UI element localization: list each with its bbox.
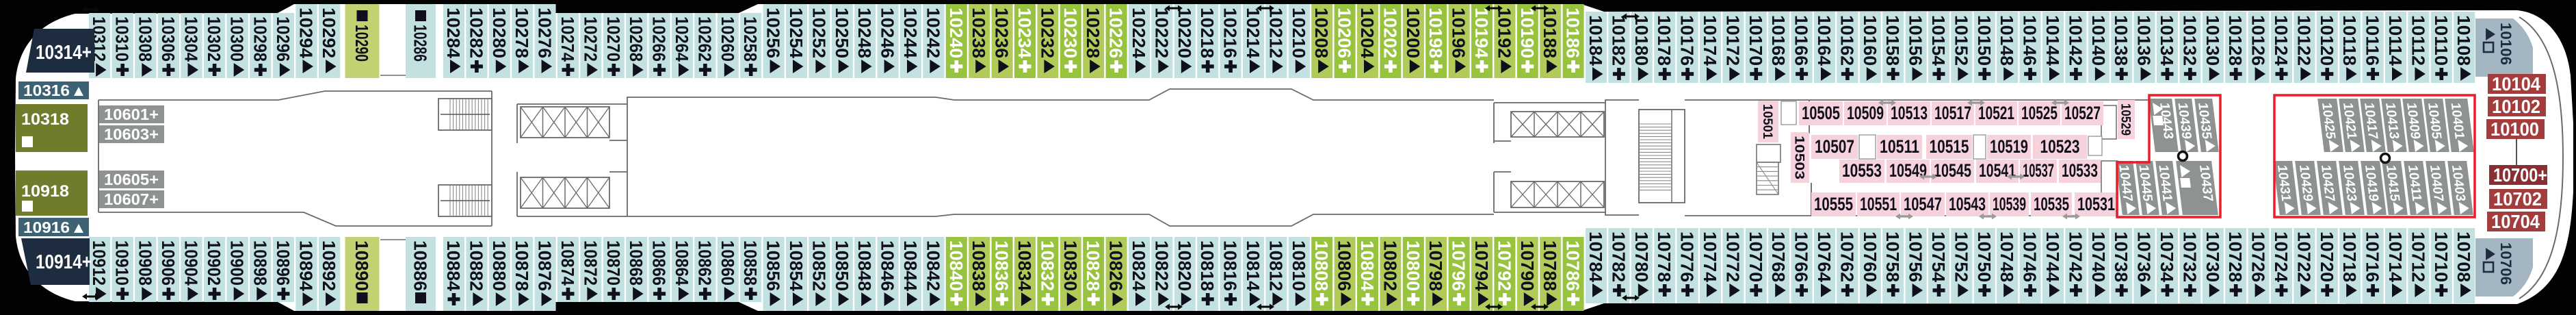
svg-text:10118: 10118 [2339,15,2360,66]
svg-text:10804: 10804 [1357,240,1378,292]
svg-text:10274: 10274 [557,16,578,62]
svg-text:10780: 10780 [1631,231,1652,282]
svg-text:10850: 10850 [832,240,852,291]
svg-text:10304: 10304 [181,16,202,62]
svg-text:10916: 10916 [23,218,70,236]
svg-text:10515: 10515 [1930,136,1969,157]
svg-text:10786: 10786 [1563,240,1583,291]
svg-text:10535: 10535 [2034,194,2069,214]
svg-text:10116: 10116 [2363,15,2383,66]
svg-text:10523: 10523 [2040,136,2080,157]
svg-text:10302: 10302 [204,16,224,62]
svg-text:10262: 10262 [694,16,715,62]
svg-text:10904: 10904 [181,240,202,286]
svg-text:10545: 10545 [1934,160,1971,181]
svg-text:10601+: 10601+ [104,105,159,123]
svg-text:10244: 10244 [900,8,921,59]
svg-text:10820: 10820 [1174,240,1195,291]
svg-text:10501: 10501 [1760,104,1774,139]
svg-text:10280: 10280 [489,8,510,58]
svg-text:10308: 10308 [135,16,155,62]
svg-text:10509: 10509 [1847,103,1884,123]
svg-text:10268: 10268 [626,16,646,62]
svg-text:10146: 10146 [2020,15,2040,66]
svg-text:10248: 10248 [854,8,875,58]
svg-text:10784: 10784 [1586,231,1606,283]
svg-text:10788: 10788 [1540,240,1560,291]
svg-text:10776: 10776 [1677,231,1698,282]
svg-text:10710: 10710 [2431,231,2452,282]
svg-text:10766: 10766 [1791,231,1812,282]
svg-text:10607+: 10607+ [104,190,159,208]
svg-text:10206: 10206 [1335,8,1355,58]
svg-text:10706: 10706 [2497,242,2514,285]
svg-text:10704: 10704 [2491,211,2540,232]
svg-text:10166: 10166 [1791,15,1812,66]
svg-text:10840: 10840 [946,240,967,291]
svg-text:10218: 10218 [1197,8,1218,58]
svg-text:10774: 10774 [1700,231,1720,283]
svg-text:10826: 10826 [1106,240,1127,291]
svg-text:10533: 10533 [2062,160,2098,181]
svg-text:10112: 10112 [2408,15,2428,66]
svg-text:10547: 10547 [1904,194,1942,214]
svg-text:10519: 10519 [1990,136,2028,157]
svg-text:10810: 10810 [1289,240,1309,291]
svg-text:10718: 10718 [2339,231,2360,282]
svg-text:10752: 10752 [1951,231,1971,282]
svg-text:10712: 10712 [2408,231,2428,282]
svg-text:10188: 10188 [1540,8,1560,58]
svg-text:10180: 10180 [1631,15,1652,66]
svg-text:10216: 10216 [1220,8,1241,58]
svg-text:10184: 10184 [1586,15,1606,66]
svg-text:10256: 10256 [763,8,784,58]
svg-text:10270: 10270 [603,16,624,62]
svg-text:10770: 10770 [1746,231,1766,282]
svg-text:10868: 10868 [626,240,646,286]
svg-text:10836: 10836 [992,240,1012,291]
svg-text:10164: 10164 [1814,15,1835,66]
svg-text:10838: 10838 [969,240,989,291]
svg-text:10870: 10870 [603,240,624,286]
svg-text:10513: 10513 [1891,103,1928,123]
svg-text:10521: 10521 [1978,103,2014,123]
svg-text:10194: 10194 [1471,8,1492,59]
svg-text:10276: 10276 [535,8,555,58]
svg-text:10722: 10722 [2294,231,2314,282]
svg-text:10224: 10224 [1129,8,1149,59]
svg-text:10796: 10796 [1449,240,1469,291]
svg-text:10176: 10176 [1677,15,1698,66]
svg-text:10152: 10152 [1951,15,1971,66]
svg-text:10740: 10740 [2088,231,2109,282]
svg-text:10234: 10234 [1014,8,1035,59]
svg-text:10511: 10511 [1880,136,1919,157]
svg-text:10874: 10874 [557,240,578,286]
svg-text:10714: 10714 [2385,231,2406,283]
svg-text:10816: 10816 [1220,240,1241,291]
svg-text:10882: 10882 [466,240,486,291]
svg-text:10106: 10106 [2497,23,2514,65]
svg-text:10170: 10170 [1746,15,1766,66]
svg-text:10605+: 10605+ [104,171,159,188]
svg-text:10794: 10794 [1471,240,1492,292]
svg-text:10110: 10110 [2431,15,2452,66]
svg-text:10132: 10132 [2179,15,2200,66]
svg-text:10318: 10318 [21,110,69,129]
svg-text:10708: 10708 [2454,231,2474,282]
svg-text:10764: 10764 [1814,231,1835,283]
svg-text:10140: 10140 [2088,15,2109,66]
svg-text:10154: 10154 [1928,15,1949,66]
svg-text:10862: 10862 [694,240,715,286]
svg-text:10507: 10507 [1815,136,1854,157]
svg-text:10910: 10910 [112,240,133,286]
svg-text:10744: 10744 [2042,231,2063,283]
svg-text:10202: 10202 [1380,8,1400,58]
svg-text:10732: 10732 [2179,231,2200,282]
svg-text:10126: 10126 [2248,15,2269,66]
svg-text:10702: 10702 [2493,188,2542,210]
svg-text:10182: 10182 [1608,15,1629,66]
svg-text:10156: 10156 [1906,15,1926,66]
svg-text:10214: 10214 [1243,8,1263,59]
svg-text:10525: 10525 [2021,103,2058,123]
svg-text:10734: 10734 [2157,231,2177,283]
svg-text:10242: 10242 [923,8,943,58]
svg-text:10822: 10822 [1151,240,1172,291]
svg-text:10912: 10912 [89,240,109,286]
svg-text:10266: 10266 [649,16,670,62]
svg-text:10898: 10898 [250,240,270,286]
svg-text:10818: 10818 [1197,240,1218,291]
svg-text:10220: 10220 [1174,8,1195,58]
svg-text:10886: 10886 [410,240,431,291]
svg-text:10832: 10832 [1037,240,1057,291]
svg-text:10298: 10298 [250,16,270,62]
svg-text:10264: 10264 [672,16,692,62]
svg-text:10254: 10254 [786,8,806,59]
svg-text:10192: 10192 [1494,8,1514,58]
svg-text:10906: 10906 [158,240,179,286]
svg-text:10212: 10212 [1265,8,1286,58]
svg-text:10716: 10716 [2363,231,2383,282]
svg-text:10130: 10130 [2203,15,2223,66]
svg-text:10240: 10240 [946,8,967,58]
svg-text:10150: 10150 [1974,15,1995,66]
svg-text:10834: 10834 [1014,240,1035,292]
svg-text:10543: 10543 [1949,194,1986,214]
svg-text:10539: 10539 [1993,194,2026,214]
svg-text:10236: 10236 [992,8,1012,58]
svg-text:10134: 10134 [2157,15,2177,66]
svg-text:10284: 10284 [443,8,464,59]
svg-text:10800: 10800 [1403,240,1423,291]
svg-text:10918: 10918 [21,182,69,201]
svg-text:10772: 10772 [1722,231,1743,282]
svg-text:10603+: 10603+ [104,125,159,143]
svg-text:10914+: 10914+ [36,251,92,273]
svg-text:10316: 10316 [23,81,70,99]
svg-text:10880: 10880 [489,240,510,291]
svg-text:10286: 10286 [410,25,431,62]
svg-text:10756: 10756 [1906,231,1926,282]
svg-text:10168: 10168 [1768,15,1789,66]
svg-text:10178: 10178 [1654,15,1674,66]
svg-text:10238: 10238 [969,8,989,58]
svg-text:10208: 10208 [1311,8,1332,58]
svg-text:10760: 10760 [1860,231,1880,282]
svg-text:10762: 10762 [1837,231,1857,282]
svg-text:10200: 10200 [1403,8,1423,58]
svg-text:10148: 10148 [1997,15,2017,66]
svg-text:10748: 10748 [1997,231,2017,282]
svg-text:10700+: 10700+ [2493,164,2547,186]
svg-text:10894: 10894 [296,240,317,292]
svg-text:10144: 10144 [2042,15,2063,66]
svg-text:10186: 10186 [1563,8,1583,58]
svg-text:10890: 10890 [352,240,372,291]
svg-text:10172: 10172 [1722,15,1743,66]
svg-text:10728: 10728 [2225,231,2246,282]
svg-text:10856: 10856 [763,240,784,291]
svg-text:10790: 10790 [1517,240,1538,291]
svg-text:10272: 10272 [580,16,601,62]
svg-text:10782: 10782 [1608,231,1629,282]
svg-text:10204: 10204 [1357,8,1378,59]
svg-text:10798: 10798 [1425,240,1446,291]
svg-text:10854: 10854 [786,240,806,292]
svg-text:10114: 10114 [2385,15,2406,66]
svg-text:10174: 10174 [1700,15,1720,66]
svg-text:10258: 10258 [740,16,761,62]
svg-text:10306: 10306 [158,16,179,62]
svg-text:10260: 10260 [718,16,738,62]
svg-text:10228: 10228 [1083,8,1103,58]
svg-text:10531: 10531 [2077,194,2115,214]
svg-text:10852: 10852 [809,240,829,291]
svg-text:10828: 10828 [1083,240,1103,291]
svg-text:10806: 10806 [1335,240,1355,291]
svg-text:10754: 10754 [1928,231,1949,283]
svg-text:10517: 10517 [1934,103,1971,123]
svg-text:10136: 10136 [2134,15,2155,66]
svg-text:10310: 10310 [112,16,133,62]
svg-text:10294: 10294 [296,8,317,59]
svg-text:10300: 10300 [227,16,248,62]
svg-text:10210: 10210 [1289,8,1309,58]
svg-text:10808: 10808 [1311,240,1332,291]
svg-text:10878: 10878 [512,240,532,291]
svg-text:10812: 10812 [1265,240,1286,291]
svg-text:10232: 10232 [1037,8,1057,58]
svg-text:10742: 10742 [2065,231,2086,282]
svg-text:10503: 10503 [1792,136,1806,179]
svg-text:10814: 10814 [1243,240,1263,292]
svg-text:10108: 10108 [2454,15,2474,66]
svg-text:10124: 10124 [2271,15,2291,66]
svg-text:10720: 10720 [2317,231,2337,282]
svg-text:10730: 10730 [2203,231,2223,282]
svg-text:10120: 10120 [2317,15,2337,66]
svg-text:10122: 10122 [2294,15,2314,66]
svg-text:10198: 10198 [1425,8,1446,58]
svg-text:10908: 10908 [135,240,155,286]
svg-text:10296: 10296 [273,16,293,62]
svg-text:10746: 10746 [2020,231,2040,282]
svg-text:10866: 10866 [649,240,670,286]
svg-text:10736: 10736 [2134,231,2155,282]
svg-text:10842: 10842 [923,240,943,291]
svg-text:10278: 10278 [512,8,532,58]
svg-text:10162: 10162 [1837,15,1857,66]
svg-text:10824: 10824 [1129,240,1149,292]
svg-text:10100: 10100 [2490,118,2539,140]
svg-text:10844: 10844 [900,240,921,292]
svg-text:10872: 10872 [580,240,601,286]
svg-text:10250: 10250 [832,8,852,58]
svg-text:10252: 10252 [809,8,829,58]
svg-text:10222: 10222 [1151,8,1172,58]
svg-text:10778: 10778 [1654,231,1674,282]
svg-text:10726: 10726 [2248,231,2269,282]
svg-text:10104: 10104 [2492,73,2540,94]
svg-text:10282: 10282 [466,8,486,58]
svg-text:10892: 10892 [319,240,339,291]
svg-text:10876: 10876 [535,240,555,291]
svg-text:10138: 10138 [2111,15,2131,66]
svg-text:10128: 10128 [2225,15,2246,66]
svg-text:10527: 10527 [2064,103,2101,123]
svg-text:10830: 10830 [1060,240,1081,291]
svg-text:10553: 10553 [1842,160,1882,181]
svg-text:10246: 10246 [878,8,898,58]
svg-text:10290: 10290 [352,25,372,62]
svg-text:10142: 10142 [2065,15,2086,66]
svg-text:10551: 10551 [1860,194,1897,214]
svg-text:10802: 10802 [1380,240,1400,291]
svg-text:10158: 10158 [1882,15,1903,66]
svg-text:10738: 10738 [2111,231,2131,282]
svg-text:10190: 10190 [1517,8,1538,58]
svg-text:10314+: 10314+ [36,42,92,64]
svg-text:10226: 10226 [1106,8,1127,58]
svg-text:10102: 10102 [2492,96,2540,117]
svg-text:10505: 10505 [1802,103,1840,123]
svg-text:10848: 10848 [854,240,875,291]
svg-text:10902: 10902 [204,240,224,286]
svg-text:10529: 10529 [2118,103,2133,136]
svg-text:10884: 10884 [443,240,464,292]
svg-text:10292: 10292 [319,8,339,58]
svg-text:10196: 10196 [1449,8,1469,58]
svg-text:10846: 10846 [878,240,898,291]
svg-text:10860: 10860 [718,240,738,286]
svg-text:10537: 10537 [2023,160,2054,181]
svg-text:10555: 10555 [1814,194,1853,214]
svg-text:10792: 10792 [1494,240,1514,291]
svg-text:10896: 10896 [273,240,293,286]
svg-text:10160: 10160 [1860,15,1880,66]
svg-text:10758: 10758 [1882,231,1903,282]
svg-text:10750: 10750 [1974,231,1995,282]
svg-text:10724: 10724 [2271,231,2291,283]
svg-text:10864: 10864 [672,240,692,286]
svg-text:10768: 10768 [1768,231,1789,282]
svg-text:10230: 10230 [1060,8,1081,58]
svg-text:10900: 10900 [227,240,248,286]
svg-text:10858: 10858 [740,240,761,286]
